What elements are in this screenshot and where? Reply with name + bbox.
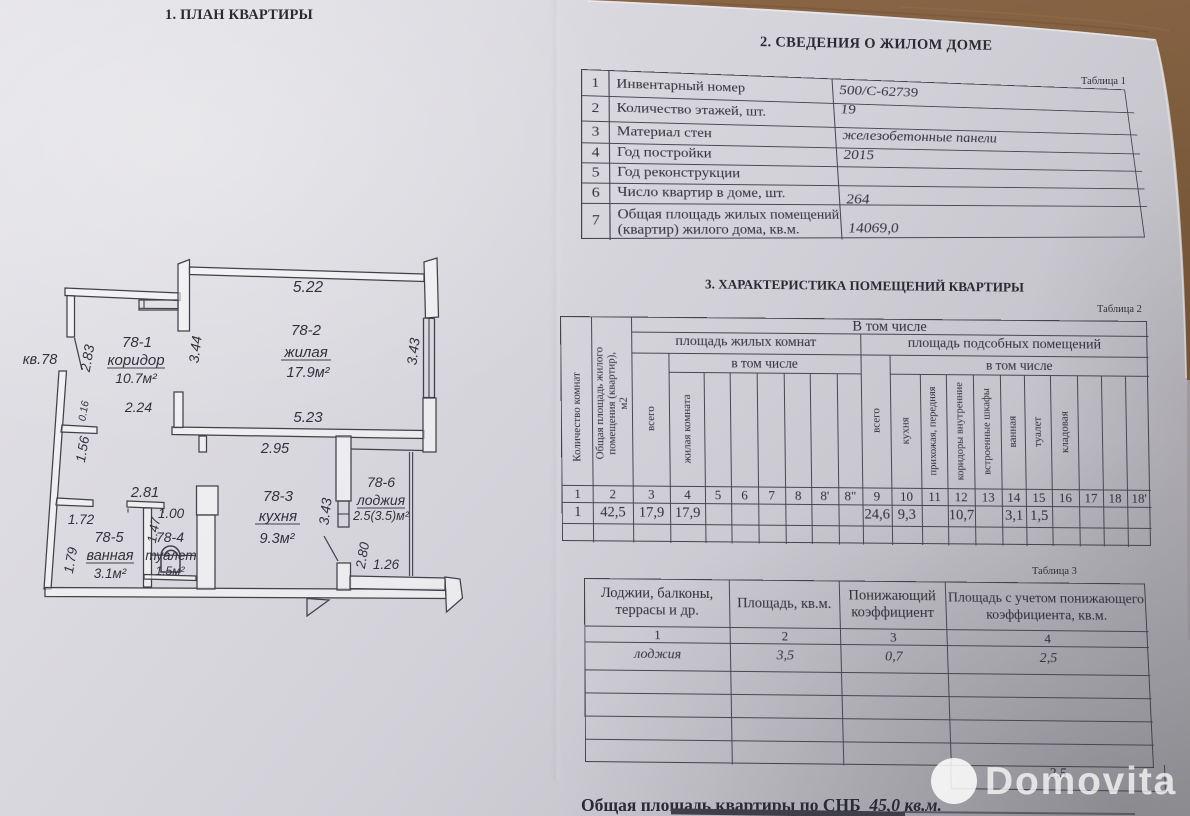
svg-text:3.43: 3.43	[315, 497, 334, 526]
svg-text:3.43: 3.43	[403, 337, 422, 366]
svg-text:1.56: 1.56	[73, 434, 92, 463]
svg-text:78-3: 78-3	[263, 488, 294, 505]
svg-text:1.72: 1.72	[68, 512, 95, 527]
svg-text:1.00: 1.00	[158, 506, 185, 521]
svg-text:2.5(3.5)м²: 2.5(3.5)м²	[352, 509, 410, 523]
svg-text:78-4: 78-4	[156, 529, 184, 545]
svg-text:ванная: ванная	[86, 548, 133, 564]
svg-text:2.81: 2.81	[130, 485, 159, 501]
svg-text:коридор: коридор	[107, 352, 164, 369]
svg-text:3.44: 3.44	[185, 335, 204, 364]
svg-text:1.26: 1.26	[373, 557, 400, 572]
svg-text:5.23: 5.23	[293, 409, 323, 426]
svg-text:2.95: 2.95	[260, 441, 290, 457]
svg-text:78-1: 78-1	[122, 334, 152, 351]
svg-text:лоджия: лоджия	[356, 492, 406, 508]
svg-text:туалет: туалет	[145, 548, 196, 563]
svg-text:17.9м²: 17.9м²	[287, 365, 331, 381]
svg-text:1.5м²: 1.5м²	[156, 564, 186, 578]
svg-text:10.7м²: 10.7м²	[115, 370, 158, 386]
svg-text:2.24: 2.24	[124, 399, 152, 415]
svg-text:78-2: 78-2	[291, 322, 322, 339]
svg-text:жилая: жилая	[283, 344, 327, 361]
svg-text:9.3м²: 9.3м²	[260, 531, 296, 547]
svg-text:78-5: 78-5	[94, 530, 124, 546]
svg-text:78-6: 78-6	[367, 474, 395, 490]
svg-text:2.83: 2.83	[77, 343, 98, 374]
svg-text:кв.78: кв.78	[23, 352, 58, 368]
svg-text:2.80: 2.80	[353, 540, 373, 570]
svg-text:0.16: 0.16	[76, 400, 91, 422]
svg-text:1.79: 1.79	[61, 545, 80, 574]
svg-text:5.22: 5.22	[293, 279, 324, 296]
svg-text:3.1м²: 3.1м²	[94, 566, 127, 581]
svg-text:кухня: кухня	[259, 508, 297, 525]
